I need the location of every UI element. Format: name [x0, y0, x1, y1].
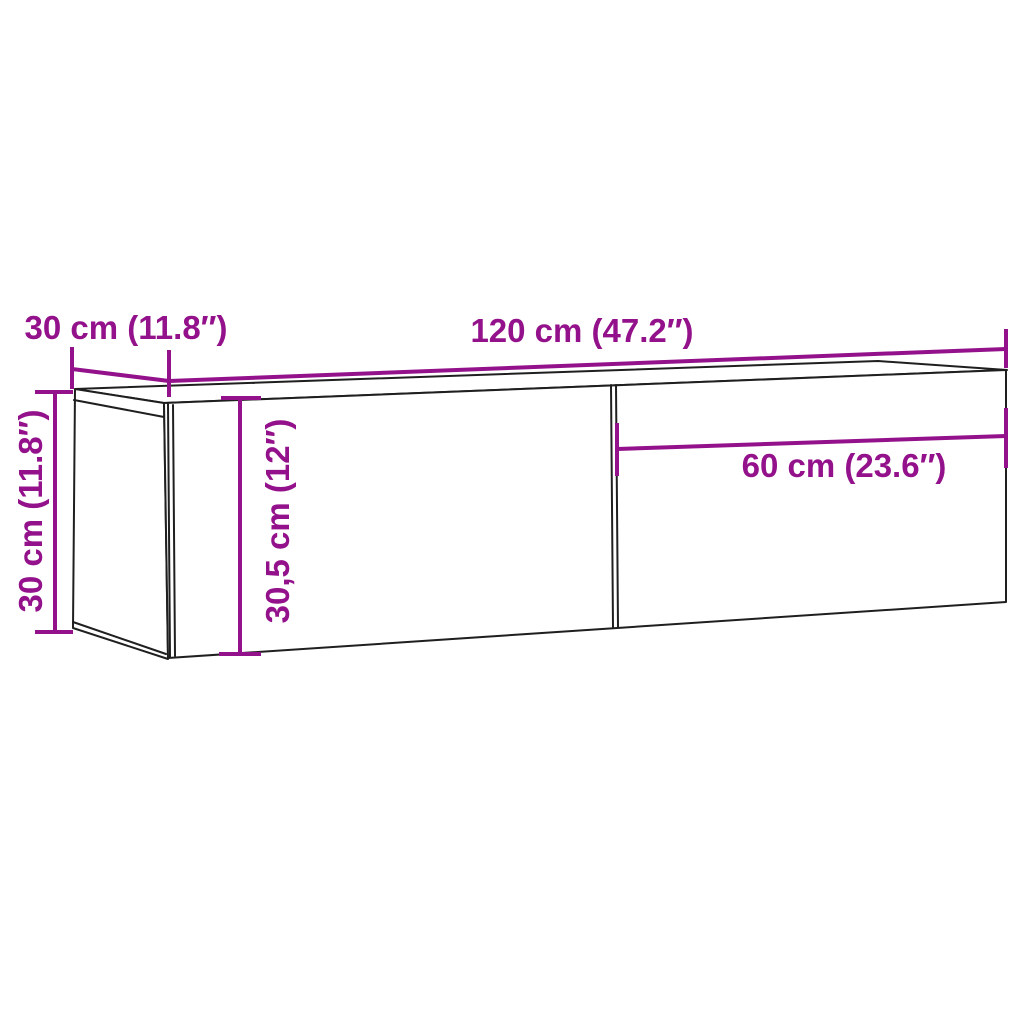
depth-dimension-label: 30 cm (11.8″)	[25, 310, 228, 346]
inner-height-dimension-label: 30,5 cm (12″)	[260, 419, 296, 624]
section-width-dimension-label: 60 cm (23.6″)	[742, 448, 947, 484]
height-dimension-label: 30 cm (11.8″)	[13, 410, 49, 613]
width-dimension-label: 120 cm (47.2″)	[470, 313, 693, 349]
depth-dimension-line	[72, 369, 169, 381]
cabinet-left-face	[73, 389, 168, 659]
dimension-diagram: 120 cm (47.2″) 30 cm (11.8″) 30 cm (11.8…	[0, 0, 1024, 1024]
cabinet-line-drawing	[0, 0, 1024, 1024]
